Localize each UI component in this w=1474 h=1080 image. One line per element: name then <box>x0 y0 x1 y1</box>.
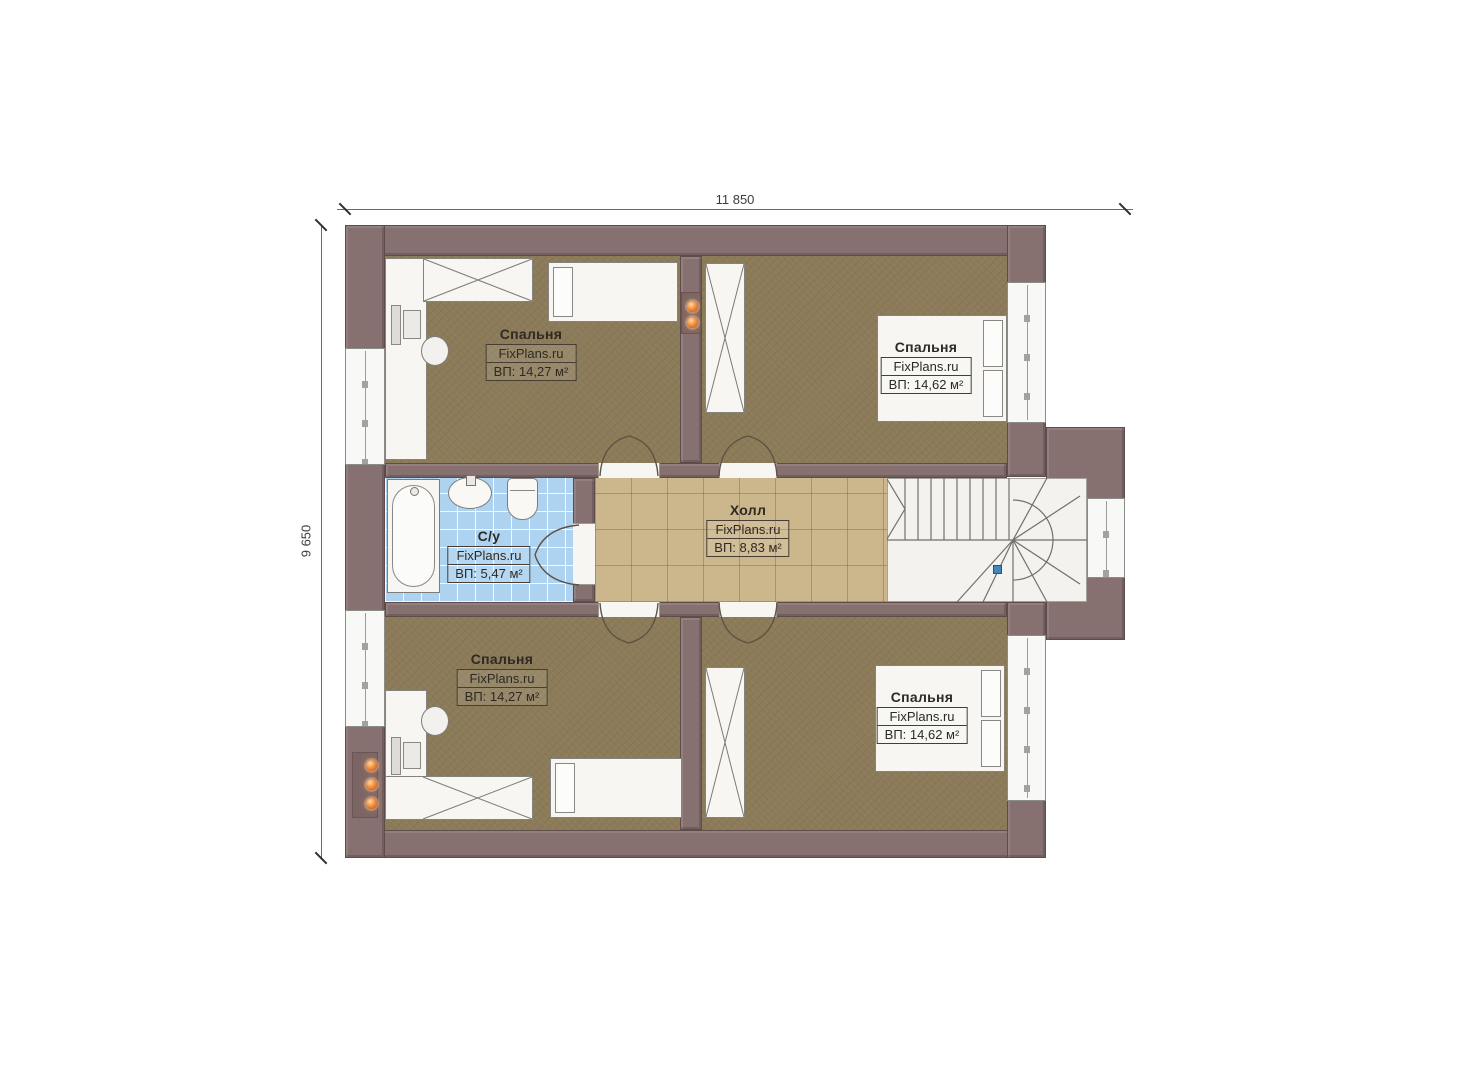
wall-light-icon <box>366 779 377 790</box>
room-brand: FixPlans.ru <box>878 708 967 725</box>
bathtub-icon <box>387 479 440 593</box>
wardrobe-icon <box>423 258 533 302</box>
crossed-lines-icon <box>706 264 744 412</box>
room-info-table: FixPlans.ru ВП: 8,83 м² <box>706 520 789 557</box>
level-marker-icon <box>993 565 1002 574</box>
stairs-icon <box>887 478 1087 602</box>
wall-light-icon <box>366 798 377 809</box>
room-label-bedroom-top-right: Спальня FixPlans.ru ВП: 14,62 м² <box>881 339 972 394</box>
dimension-width-label: 11 850 <box>716 192 755 207</box>
door-swing-icon <box>718 602 778 644</box>
room-name: Спальня <box>877 689 968 705</box>
window-right-upper <box>1007 282 1046 423</box>
sink-icon <box>448 477 492 509</box>
room-name: Холл <box>706 502 789 518</box>
window-left-upper <box>345 348 385 465</box>
wardrobe-icon <box>385 776 533 820</box>
office-chair-icon <box>421 336 449 366</box>
room-brand: FixPlans.ru <box>707 521 788 538</box>
room-brand: FixPlans.ru <box>487 345 576 362</box>
room-area: ВП: 14,27 м² <box>487 362 576 380</box>
wall-light-icon <box>687 317 698 328</box>
bed-icon <box>548 262 678 322</box>
pillow <box>555 763 575 813</box>
wall-top <box>345 225 1046 256</box>
wardrobe-icon <box>705 263 745 413</box>
room-area: ВП: 8,83 м² <box>707 538 788 556</box>
room-label-bedroom-bottom-right: Спальня FixPlans.ru ВП: 14,62 м² <box>877 689 968 744</box>
room-name: С/у <box>447 528 530 544</box>
room-label-bedroom-bottom-left: Спальня FixPlans.ru ВП: 14,27 м² <box>457 651 548 706</box>
room-area: ВП: 5,47 м² <box>448 564 529 582</box>
room-info-table: FixPlans.ru ВП: 14,27 м² <box>486 344 577 381</box>
crossed-lines-icon <box>424 259 532 301</box>
door-swing-icon <box>718 435 778 477</box>
crossed-lines-icon <box>706 668 744 817</box>
wardrobe-icon <box>705 667 745 818</box>
room-info-table: FixPlans.ru ВП: 5,47 м² <box>447 546 530 583</box>
window-right-lower <box>1007 635 1046 801</box>
room-name: Спальня <box>486 326 577 342</box>
toilet-icon <box>507 478 538 520</box>
room-name: Спальня <box>457 651 548 667</box>
wall-light-icon <box>366 760 377 771</box>
desk-icon <box>385 258 427 460</box>
wall-mid-upper <box>385 463 1007 478</box>
room-info-table: FixPlans.ru ВП: 14,62 м² <box>877 707 968 744</box>
dimension-line-left <box>321 225 322 858</box>
room-info-table: FixPlans.ru ВП: 14,62 м² <box>881 357 972 394</box>
room-info-table: FixPlans.ru ВП: 14,27 м² <box>457 669 548 706</box>
office-chair-icon <box>421 706 449 736</box>
pillow <box>981 670 1001 717</box>
room-area: ВП: 14,27 м² <box>458 687 547 705</box>
wall-center-lower <box>680 617 702 830</box>
door-swing-icon <box>534 524 580 586</box>
door-swing-icon <box>599 435 659 477</box>
wall-center-upper <box>680 256 702 463</box>
crossed-lines-icon <box>423 777 532 819</box>
room-brand: FixPlans.ru <box>448 547 529 564</box>
pillow <box>983 320 1003 367</box>
room-label-hall: Холл FixPlans.ru ВП: 8,83 м² <box>706 502 789 557</box>
door-swing-icon <box>599 602 659 644</box>
window-left-lower <box>345 610 385 727</box>
wall-mid-lower <box>385 602 1007 617</box>
room-brand: FixPlans.ru <box>458 670 547 687</box>
room-area: ВП: 14,62 м² <box>882 375 971 393</box>
wall-light-icon <box>687 301 698 312</box>
room-label-bathroom: С/у FixPlans.ru ВП: 5,47 м² <box>447 528 530 583</box>
window-bay <box>1087 498 1125 578</box>
room-label-bedroom-top-left: Спальня FixPlans.ru ВП: 14,27 м² <box>486 326 577 381</box>
wall-bottom <box>345 830 1046 858</box>
room-area: ВП: 14,62 м² <box>878 725 967 743</box>
room-name: Спальня <box>881 339 972 355</box>
pillow <box>981 720 1001 767</box>
dimension-height-label: 9 650 <box>299 525 314 558</box>
bed-icon <box>550 758 682 818</box>
pillow <box>983 370 1003 417</box>
dimension-line-top <box>337 209 1133 210</box>
room-brand: FixPlans.ru <box>882 358 971 375</box>
pillow <box>553 267 573 317</box>
floor-plan: 11 850 9 650 <box>0 0 1474 1080</box>
